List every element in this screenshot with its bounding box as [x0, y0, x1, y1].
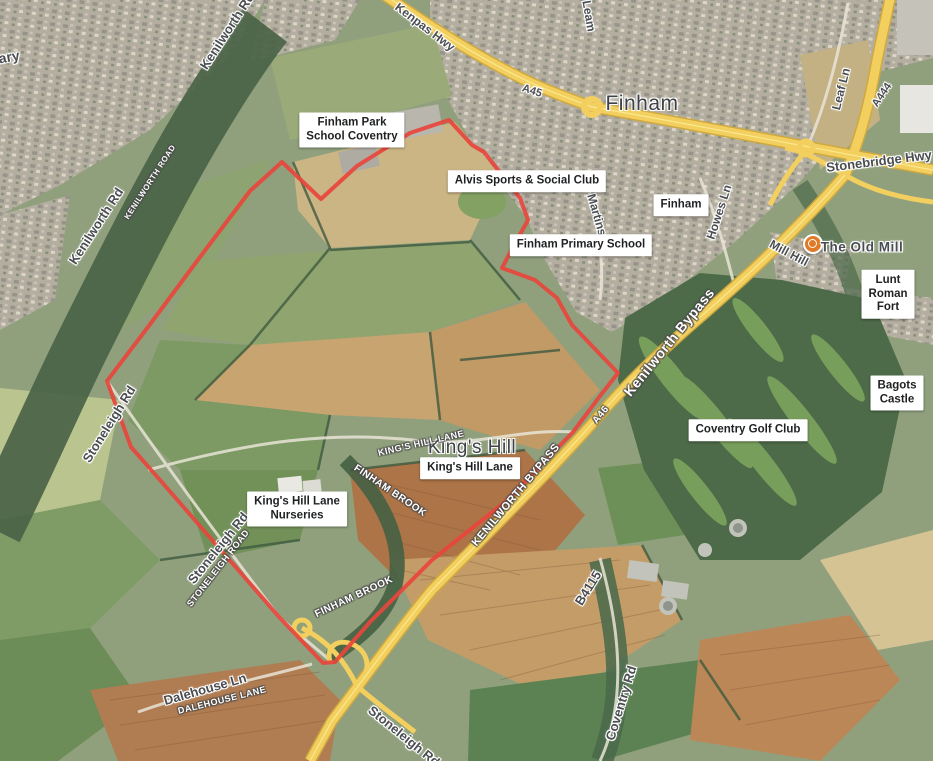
poi-box-label-finham[interactable]: Finham — [654, 194, 709, 216]
poi-box-label-finham-park-school-coventry[interactable]: Finham ParkSchool Coventry — [299, 113, 404, 148]
poi-box-label-alvis-sports-social-club[interactable]: Alvis Sports & Social Club — [448, 170, 606, 192]
poi-marker-the-old-mill-icon[interactable] — [803, 234, 823, 254]
poi-box-label-king-s-hill-lane[interactable]: King's Hill Lane — [420, 457, 520, 479]
poi-box-label-finham-primary-school[interactable]: Finham Primary School — [510, 234, 652, 256]
poi-box-label-king-s-hill-lane-nurseries[interactable]: King's Hill LaneNurseries — [247, 492, 347, 527]
poi-box-label-lunt-roman-fort[interactable]: Lunt Roman Fort — [862, 270, 915, 319]
poi-box-label-bagots-castle[interactable]: Bagots Castle — [871, 376, 924, 411]
map-artwork — [0, 0, 933, 761]
satellite-map-canvas[interactable]: Finham King's Hill The Old Mill LibraryK… — [0, 0, 933, 761]
poi-box-label-coventry-golf-club[interactable]: Coventry Golf Club — [689, 419, 808, 441]
